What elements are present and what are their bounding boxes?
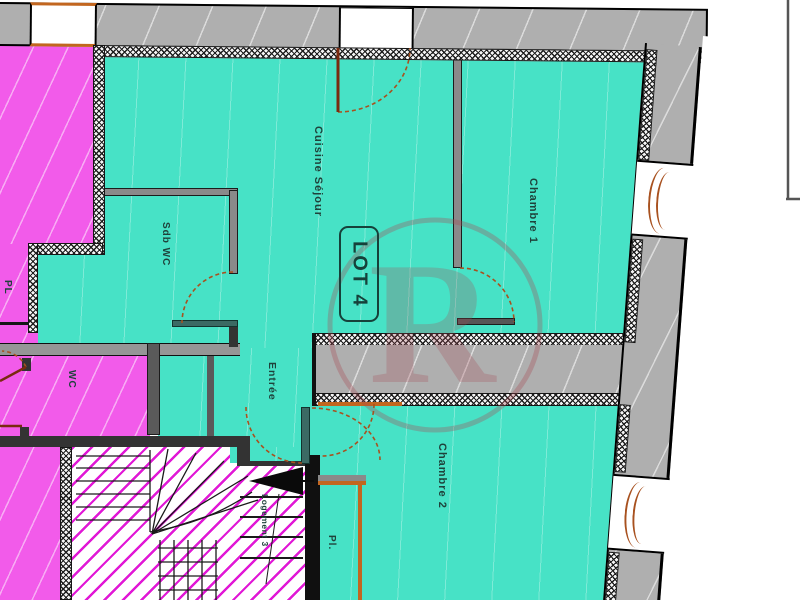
pl-bottom-line (0, 322, 28, 325)
wall-corridor-partition (207, 356, 214, 438)
room-neighbor-lower-area (0, 447, 60, 600)
staircase-area (72, 447, 305, 600)
chambre2-door-leaf (318, 402, 402, 406)
hatch-left-wall (93, 45, 105, 255)
wall-sdb-vertical (229, 190, 238, 274)
wall-wc-right (147, 343, 160, 435)
window-chambre2 (608, 474, 672, 554)
wall-sdb-horizontal (100, 188, 238, 196)
wall-stair-corner (237, 436, 250, 466)
label-chambre2: Chambre 2 (436, 443, 448, 509)
label-chambre1: Chambre 1 (527, 178, 539, 244)
wall-island-end-cap (312, 333, 316, 406)
wall-stair-top (0, 436, 250, 447)
pl-closet-side-rail (358, 485, 362, 600)
label-cuisine-sejour: Cuisine Séjour (312, 126, 324, 217)
wc-door-block (22, 358, 31, 371)
label-stair-destination: Logement 3 (260, 494, 270, 547)
wall-island-core (315, 345, 655, 394)
label-sdb-wc: Sdb WC (160, 222, 171, 266)
hatch-stair-left-wall (60, 447, 72, 600)
hatch-pl-horizontal (28, 243, 103, 255)
room-sdb-extension-area (38, 253, 95, 345)
window-top-left (30, 2, 97, 47)
window-top-middle (339, 7, 414, 50)
room-chambre2-area (315, 390, 655, 600)
wall-cuisine-chambre1-partition (453, 45, 462, 268)
lot-number-text: LOT 4 (348, 241, 371, 308)
window-chambre1 (632, 160, 696, 240)
label-entree: Entrée (266, 362, 278, 401)
lower-door-block (20, 427, 29, 439)
room-neighbor-upper-area (0, 46, 95, 244)
wall-wc-top-band (0, 343, 240, 356)
label-pl-upper: PL (2, 280, 13, 295)
label-wc: WC (66, 370, 77, 389)
hatch-right-3 (615, 404, 631, 473)
sdb-door-post (229, 327, 238, 347)
hatch-pl-vertical (28, 243, 38, 333)
label-pl-lower: Pl. (326, 535, 337, 550)
hatch-right-4 (605, 552, 620, 600)
floor-plan: R (0, 0, 800, 600)
sdb-door-leaf (172, 320, 238, 327)
chambre1-door-leaf (457, 318, 515, 325)
lot-number-badge: LOT 4 (339, 226, 379, 322)
entry-door-leaf (301, 407, 310, 464)
